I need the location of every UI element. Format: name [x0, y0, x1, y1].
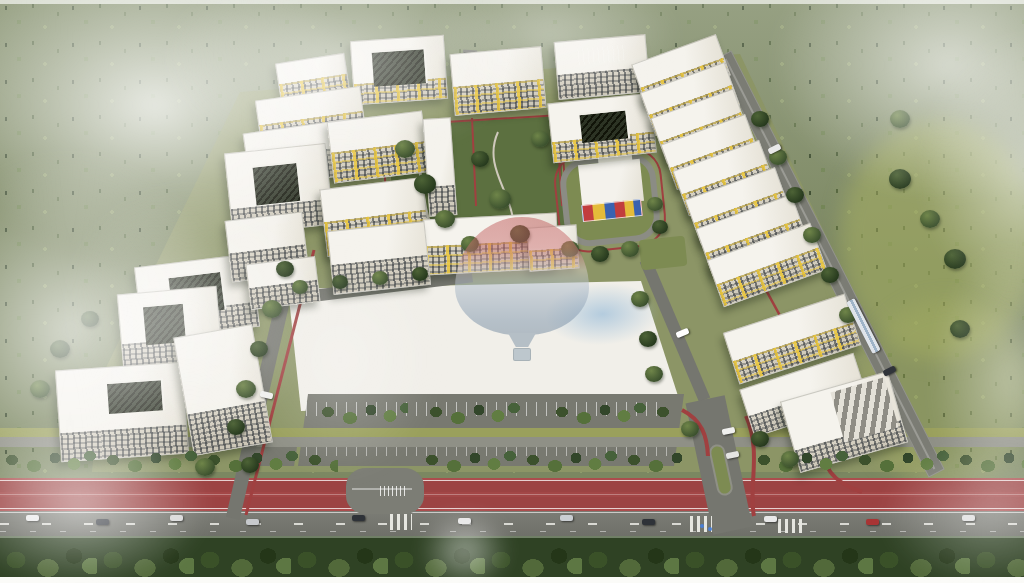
- fog-cloud: [880, 440, 1024, 583]
- fog-layer: [0, 0, 1024, 583]
- fog-cloud: [420, 510, 510, 583]
- aerial-masterplan-rendering: [0, 0, 1024, 583]
- fog-cloud: [240, 240, 440, 480]
